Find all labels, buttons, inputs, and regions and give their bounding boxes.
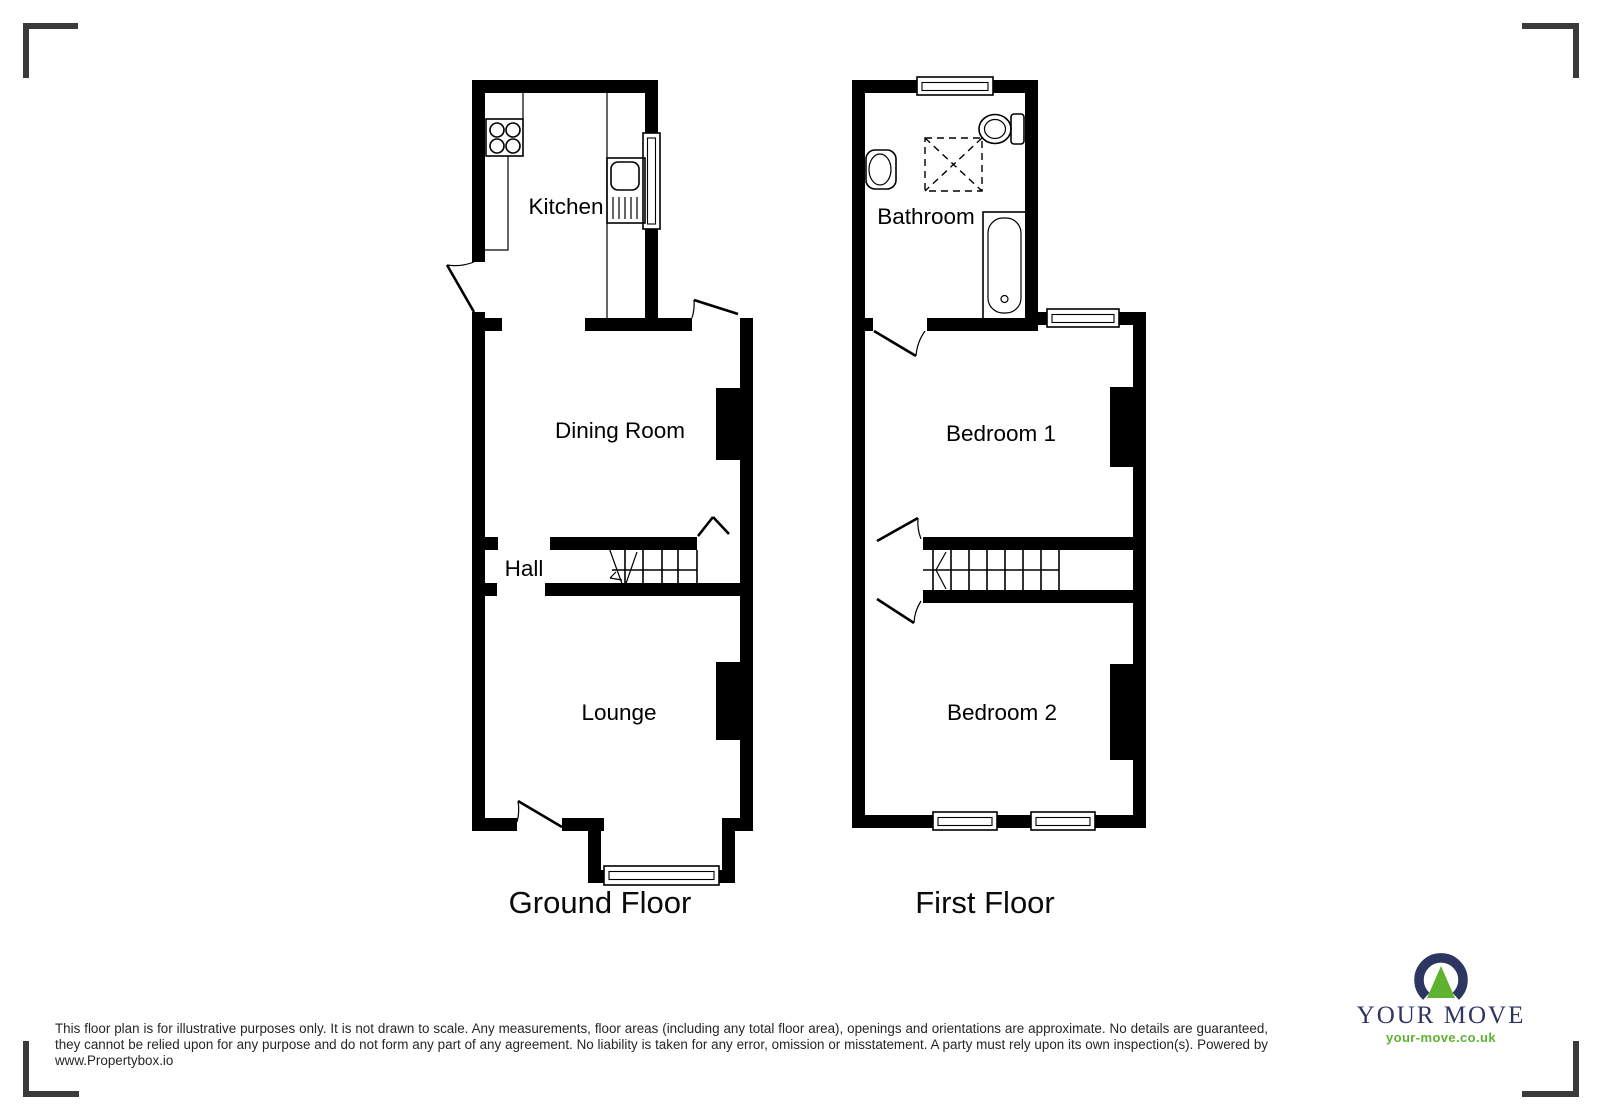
bedroom1-window: [1047, 309, 1119, 327]
ground-floor-windows: [604, 133, 719, 885]
room-label-kitchen: Kitchen: [528, 194, 603, 219]
window-frame: [1031, 812, 1095, 830]
chimney-breast: [716, 388, 740, 460]
stair-treads: [612, 550, 697, 583]
dining-to-hall-door: [698, 517, 729, 536]
room-label-bedroom2: Bedroom 2: [947, 700, 1057, 725]
bedroom2-door: [877, 599, 921, 623]
wall-segment: [585, 318, 692, 331]
your-move-logo: YOUR MOVE your-move.co.uk: [1357, 958, 1526, 1045]
front-door: [517, 801, 562, 827]
door-arc: [447, 262, 474, 266]
stove-icon: [486, 119, 523, 156]
room-label-lounge: Lounge: [581, 700, 656, 725]
bay-window-wall: [588, 870, 605, 883]
door-leaf: [698, 517, 729, 536]
wall-segment: [852, 80, 865, 828]
door-leaf: [694, 300, 738, 314]
door-leaf: [877, 599, 914, 623]
kitchen-side-door: [447, 262, 474, 312]
door-leaf: [874, 331, 916, 356]
door-arc: [914, 601, 921, 623]
washbasin-icon: [866, 150, 896, 189]
bathroom-window: [917, 77, 993, 95]
door-arc: [918, 518, 921, 539]
ground-floor-title: Ground Floor: [509, 885, 692, 920]
wall-segment: [923, 590, 1146, 603]
room-label-bedroom1: Bedroom 1: [946, 421, 1056, 446]
corner-crop-marks: [26, 26, 1576, 1094]
floorplan-drawing: Kitchen Dining Room Hall Lounge Ground F…: [0, 0, 1600, 1119]
wall-segment: [927, 318, 1038, 331]
logo-brand-text: YOUR MOVE: [1357, 1002, 1526, 1029]
wall-segment: [472, 818, 517, 831]
room-label-dining: Dining Room: [555, 418, 685, 443]
door-leaf: [518, 801, 562, 827]
kitchen-sink-icon: [607, 158, 645, 223]
wall-segment: [1133, 312, 1146, 828]
wall-segment: [472, 80, 658, 93]
floorplan-page: Kitchen Dining Room Hall Lounge Ground F…: [0, 0, 1600, 1119]
kitchen-counter-line: [485, 93, 523, 250]
first-floor-doors: [874, 331, 925, 623]
window-frame: [1047, 309, 1119, 327]
wall-segment: [472, 93, 485, 262]
bedroom1-door: [877, 518, 921, 541]
bay-window: [604, 866, 719, 885]
first-floor-plan: Bathroom Bedroom 1 Bedroom 2 First Floor: [852, 77, 1146, 920]
bathtub-icon: [983, 212, 1026, 319]
wall-segment: [485, 537, 498, 550]
wall-segment: [852, 815, 1146, 828]
corner-crop-mark: [1522, 1041, 1576, 1094]
wall-segment: [472, 312, 485, 818]
door-leaf: [877, 518, 918, 541]
wall-segment: [852, 318, 873, 331]
wall-segment: [923, 537, 1146, 550]
bay-window-wall: [718, 870, 735, 883]
wall-segment: [485, 583, 497, 596]
logo-triangle: [1427, 966, 1455, 998]
chimney-breast: [1110, 387, 1133, 467]
first-floor-title: First Floor: [915, 885, 1055, 920]
window-frame: [917, 77, 993, 95]
shower-tray-icon: [925, 138, 982, 191]
wall-segment: [645, 227, 658, 331]
wall-segment: [645, 93, 658, 135]
room-label-hall: Hall: [505, 556, 544, 581]
wall-segment: [550, 537, 697, 550]
toilet-icon: [979, 114, 1024, 144]
window-frame: [933, 812, 997, 830]
bedroom2-window: [1031, 812, 1095, 830]
corner-crop-mark: [26, 26, 78, 78]
wall-segment: [1025, 93, 1038, 331]
corner-crop-mark: [1522, 26, 1576, 78]
wall-segment: [545, 583, 753, 596]
bedroom2-window: [933, 812, 997, 830]
window-frame: [604, 866, 719, 885]
back-door: [692, 300, 738, 318]
logo-website-text: your-move.co.uk: [1386, 1030, 1496, 1045]
bathroom-door: [874, 331, 925, 356]
chimney-breast: [1110, 664, 1133, 760]
door-arc: [916, 331, 925, 356]
room-label-bathroom: Bathroom: [877, 204, 975, 229]
door-leaf: [447, 265, 474, 312]
wall-segment: [472, 318, 502, 331]
door-arc: [517, 801, 519, 822]
ground-floor-plan: Kitchen Dining Room Hall Lounge Ground F…: [447, 80, 753, 920]
door-arc: [692, 300, 694, 318]
wall-segment: [740, 318, 753, 818]
disclaimer-text: This floor plan is for illustrative purp…: [55, 1021, 1268, 1068]
chimney-breast: [716, 662, 740, 740]
first-floor-staircase: [923, 550, 1059, 590]
